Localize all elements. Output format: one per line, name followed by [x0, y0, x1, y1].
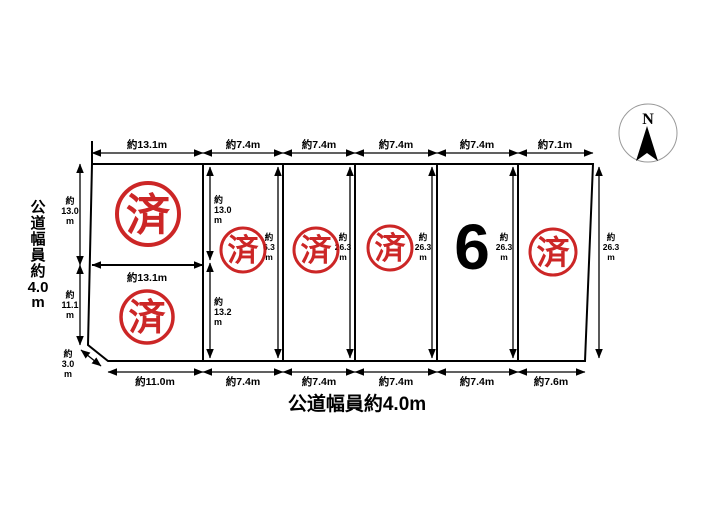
dimension-label: 約13.1m — [127, 138, 167, 151]
dimension-label: 約11.0m — [135, 375, 175, 388]
dimension-label: 26.3 — [603, 242, 620, 252]
dimension-label: 3.0 — [62, 359, 75, 369]
lot-number-6: 6 — [454, 211, 490, 283]
dimension-label: m — [500, 252, 508, 262]
svg-text:約: 約 — [30, 262, 45, 280]
dimension-label: m — [265, 252, 273, 262]
dimension-label: m — [66, 310, 74, 320]
north-label: N — [642, 111, 654, 128]
stamp-character: 済 — [301, 233, 333, 269]
svg-text:m: m — [31, 294, 44, 311]
stamp-character: 済 — [228, 233, 260, 269]
dimension-label: 約 — [265, 232, 274, 242]
dimension-label: 26.3 — [496, 242, 513, 252]
sold-stamp: 済 — [530, 229, 576, 275]
bottom-road-width-label: 公道幅員約4.0m — [288, 392, 426, 415]
dimension-label: 約 — [339, 232, 348, 242]
dimension-label: m — [64, 369, 72, 379]
dimension-label: 約7.4m — [302, 138, 336, 151]
dimension-label: 約 — [214, 296, 223, 307]
stamp-character: 済 — [537, 233, 571, 272]
sold-stamp: 済 — [121, 291, 173, 343]
svg-text:公: 公 — [30, 199, 45, 216]
dimension-label: 約7.4m — [226, 138, 260, 151]
dimension-label: 約7.4m — [302, 375, 336, 388]
dimension-label: 約 — [65, 195, 74, 206]
dimension-label: 約 — [65, 289, 74, 300]
dimension-label: 13.0 — [61, 206, 79, 216]
dimension-label: m — [214, 215, 222, 225]
dimension-label: m — [214, 317, 222, 327]
dimension-label: 13.2 — [214, 307, 232, 317]
dimension-label: 約 — [607, 232, 616, 242]
sold-stamp: 済 — [117, 183, 179, 245]
svg-text:員: 員 — [29, 247, 45, 264]
dimension-label: 26.3 — [415, 242, 432, 252]
dimension-label: 約7.1m — [538, 138, 572, 151]
dimension-label: 約 — [419, 232, 428, 242]
compass: N — [619, 104, 677, 162]
dimension-label: 約7.6m — [534, 375, 568, 388]
dimension-label: m — [66, 216, 74, 226]
sold-stamp: 済 — [221, 228, 265, 272]
dimension-label: m — [419, 252, 427, 262]
left-road-width-label: 公 道 幅 員 約 4.0 m — [28, 199, 49, 311]
lot-layout-diagram: 約13.1m 約7.4m 約7.4m 約7.4m 約7.4m 約7.1m 約11… — [0, 0, 705, 525]
dimension-label: 約7.4m — [379, 375, 413, 388]
dimension-label: m — [607, 252, 615, 262]
dimension-label: 11.1 — [61, 300, 78, 310]
dimension-label: 約7.4m — [379, 138, 413, 151]
dimension-label: 13.0 — [214, 205, 232, 215]
sold-stamp: 済 — [368, 226, 412, 270]
dimension-label: 約 — [63, 348, 72, 359]
stamp-character: 済 — [375, 231, 407, 267]
stamp-character: 済 — [129, 296, 167, 339]
svg-text:道: 道 — [30, 214, 45, 232]
stamp-character: 済 — [126, 190, 171, 241]
dimension-label: 約13.1m — [127, 271, 167, 284]
dimension-label: 約7.4m — [460, 375, 494, 388]
dimension-label: 約7.4m — [460, 138, 494, 151]
dimension-label: 約 — [214, 194, 223, 205]
dimension-label: 約7.4m — [226, 375, 260, 388]
dimension-label: m — [339, 252, 347, 262]
sold-stamp: 済 — [294, 228, 338, 272]
dimension-label: 約 — [500, 232, 509, 242]
svg-text:幅: 幅 — [30, 230, 45, 248]
